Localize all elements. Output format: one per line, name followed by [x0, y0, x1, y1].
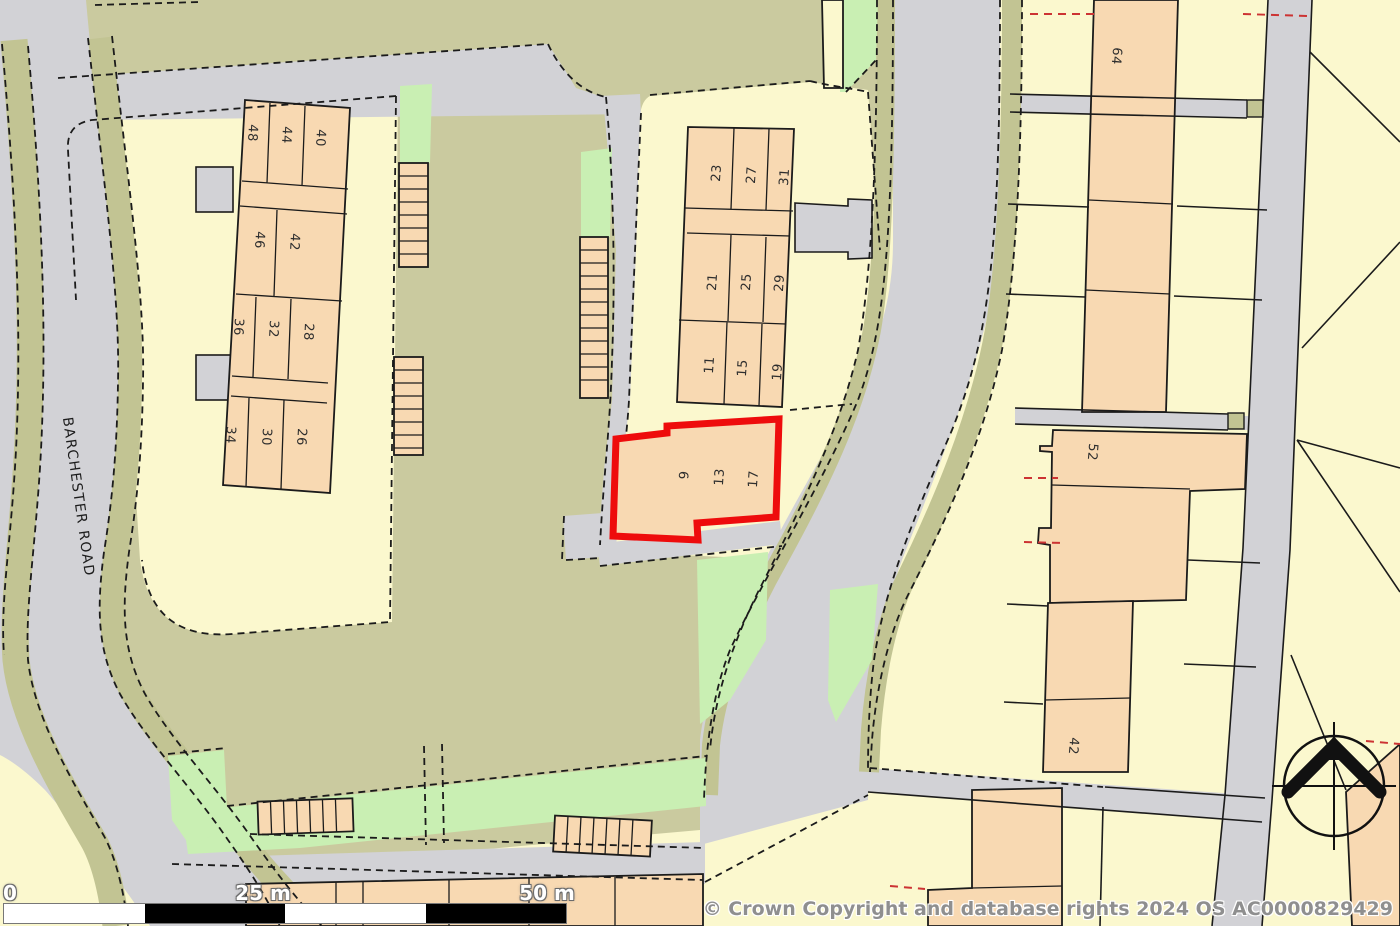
highlight-plot-outline — [613, 419, 779, 540]
west-terrace-building — [223, 100, 350, 493]
garage-strip-2 — [394, 357, 423, 455]
scale-bar-segment — [426, 904, 567, 923]
east-terrace-building — [677, 127, 794, 407]
scale-bar — [3, 903, 567, 924]
scale-bar-segment — [4, 904, 145, 923]
garage-strip-5 — [553, 816, 652, 857]
copyright-notice: © Crown Copyright and database rights 20… — [703, 898, 1393, 920]
building-42 — [1043, 601, 1133, 772]
small-building-top — [822, 0, 843, 88]
garage-strip-4 — [257, 798, 353, 834]
map-canvas — [0, 0, 1400, 926]
scale-bar-segment — [145, 904, 286, 923]
building-64 — [1082, 0, 1178, 412]
os-map-extract: 48 44 40 46 42 36 32 28 34 30 26 23 27 3… — [0, 0, 1400, 926]
scale-bar-segment — [285, 904, 426, 923]
garage-strip-3 — [580, 237, 608, 398]
garage-strip-1 — [399, 163, 428, 267]
